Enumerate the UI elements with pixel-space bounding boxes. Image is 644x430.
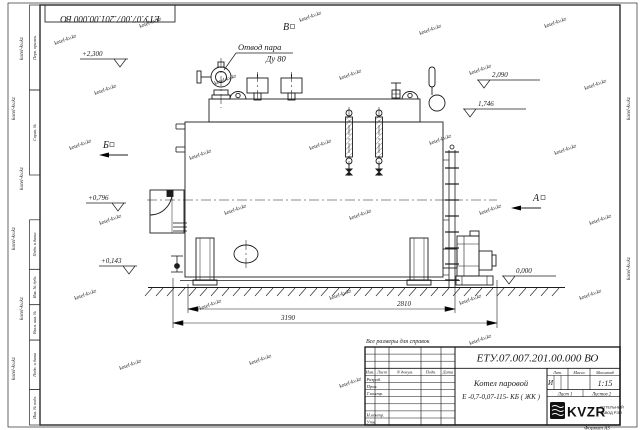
watermark-text: kotel-kv.kz (626, 256, 632, 280)
elevation-mark: 2,090 (477, 71, 540, 88)
watermark-text: kotel-kv.kz (11, 96, 17, 120)
support-left (193, 238, 217, 285)
titleblock-column-headers: Изм. Лист N докум. Подп. Дата (365, 370, 454, 375)
view-arrow-b (99, 153, 109, 158)
margin-label: Справ. № (32, 124, 37, 141)
lug-hole (408, 93, 412, 97)
drum-small-valve (391, 83, 401, 100)
watermark-text: kotel-kv.kz (419, 23, 443, 37)
product-name: Котел паровой (473, 378, 529, 388)
row-razrab: Разраб. (366, 377, 382, 382)
boiler-assembly (147, 58, 497, 287)
watermark-text: kotel-kv.kz (469, 333, 493, 347)
blueprint-sheet: kotel-kv.kzkotel-kv.kzkotel-kv.kzkotel-k… (0, 0, 644, 430)
row-prov: Пров. (366, 384, 378, 389)
margin-label: Взам. инв. № (32, 311, 37, 334)
watermark-text: kotel-kv.kz (339, 68, 363, 82)
view-arrow-a (511, 206, 521, 211)
margin-label: Инв. № подл. (32, 396, 37, 420)
elevation-mark: +2,300 (80, 50, 128, 67)
watermark-text: kotel-kv.kz (339, 376, 363, 390)
dimension-value: 3190 (280, 314, 296, 322)
elevation-value: +2,300 (82, 50, 103, 58)
row-tkontr: Т.контр. (367, 391, 384, 396)
blowdown-valve (171, 256, 183, 272)
logo-caption: ЗАВОД РЭП (600, 411, 622, 415)
elevation-value: 2,090 (492, 71, 508, 79)
format-label: Формат А3 (584, 425, 610, 430)
elevation-value: +0,796 (88, 194, 109, 202)
steam-drum-top (209, 99, 420, 122)
watermark-text: kotel-kv.kz (589, 213, 613, 227)
elevation-mark: 1,746 (463, 100, 526, 117)
valve-handwheel (197, 71, 201, 83)
col-list: Лист (376, 370, 387, 375)
elevation-value: 1,746 (478, 100, 494, 108)
watermark-text: kotel-kv.kz (119, 358, 143, 372)
row-nkontr: Н.контр. (366, 412, 385, 417)
company-logo: KVZR КОТЕЛЬНЫЙ ЗАВОД РЭП (550, 402, 624, 420)
watermark-text: kotel-kv.kz (309, 138, 333, 152)
logo-caption: КОТЕЛЬНЫЙ (600, 406, 624, 410)
watermark-text: kotel-kv.kz (626, 96, 632, 120)
watermark-text: kotel-kv.kz (349, 208, 373, 222)
watermark-text: kotel-kv.kz (19, 296, 25, 320)
centerlines (147, 58, 497, 269)
dimension-body-length: 2810 (188, 300, 455, 311)
lit-value: И (547, 379, 554, 387)
watermark-text: kotel-kv.kz (299, 10, 323, 24)
view-labels: Б В А (99, 22, 545, 211)
watermark-text: kotel-kv.kz (19, 36, 25, 60)
watermark-text: kotel-kv.kz (329, 288, 353, 302)
burner-front-box (150, 190, 184, 233)
callout-leader (224, 53, 236, 70)
watermark-text: kotel-kv.kz (579, 288, 603, 302)
watermark-text: kotel-kv.kz (199, 298, 223, 312)
reference-note: Все размеры для справок (366, 338, 430, 345)
lifting-lug (402, 92, 418, 100)
elevation-mark: 0,000 (502, 267, 556, 284)
watermark-text: kotel-kv.kz (189, 148, 213, 162)
watermark-text: kotel-kv.kz (74, 288, 98, 302)
masshtab-header: Масштаб (595, 370, 615, 375)
lifting-lug (230, 92, 246, 100)
watermark-text: kotel-kv.kz (469, 63, 493, 77)
col-izm: Изм. (365, 370, 375, 375)
watermark-text: kotel-kv.kz (69, 138, 93, 152)
watermark-text: kotel-kv.kz (544, 16, 568, 30)
titleblock-doc-number: ЕТУ.07.007.201.00.000 ВО (476, 353, 599, 365)
watermark-text: kotel-kv.kz (224, 203, 248, 217)
elevation-marks: +2,300 2,090 1,746 +0,796 +0,143 0,000 (80, 50, 556, 284)
watermark-text: kotel-kv.kz (429, 133, 453, 147)
ground (145, 288, 565, 297)
fan-motor (479, 251, 492, 270)
massa-header: Масса (572, 370, 584, 375)
watermark-text: kotel-kv.kz (19, 166, 25, 190)
lit-header: Лит. (552, 370, 562, 375)
pressure-gauge-siphon (429, 67, 445, 111)
watermark-text: kotel-kv.kz (94, 83, 118, 97)
flipped-docnumber: ЕТУ.07.007.201.00.000 ВО (60, 14, 161, 24)
scale-value: 1:15 (598, 379, 613, 388)
watermark-text: kotel-kv.kz (554, 143, 578, 157)
watermark-text: kotel-kv.kz (11, 356, 17, 380)
margin-label: Инв. № дубл. (32, 276, 37, 300)
watermark-text: kotel-kv.kz (11, 226, 17, 250)
elevation-value: +0,143 (101, 257, 122, 265)
col-podp: Подп. (425, 370, 437, 375)
watermark-text: kotel-kv.kz (249, 353, 273, 367)
support-right (407, 238, 431, 285)
margin-label: Перв. примен. (32, 35, 37, 61)
elevation-mark: +0,143 (99, 257, 137, 274)
view-label-v: В (283, 22, 289, 33)
margin-label: Подп. и дата (32, 353, 37, 378)
callout-text: Отвод пара (238, 42, 281, 52)
drawing-canvas: kotel-kv.kzkotel-kv.kzkotel-kv.kzkotel-k… (0, 0, 644, 430)
watermark-text: kotel-kv.kz (459, 293, 483, 307)
col-ndokum: N докум. (396, 370, 413, 375)
fan-base (456, 276, 493, 285)
sheet-number: Лист 1 (557, 392, 573, 397)
watermark-text: kotel-kv.kz (584, 78, 608, 92)
view-label-b: Б (102, 140, 109, 151)
dimension-overall-length: 3190 (173, 314, 497, 325)
col-data: Дата (442, 370, 454, 375)
title-block: ЕТУ.07.007.201.00.000 ВО Изм. Лист N док… (365, 347, 624, 430)
watermark-text: kotel-kv.kz (99, 213, 123, 227)
product-designation: Е -0,7-0,07-115- КБ ( ЖК ) (461, 393, 540, 401)
fan-unit (443, 231, 496, 285)
margin-labels: Перв. примен. Справ. № Подп. и дата Инв.… (32, 35, 37, 420)
watermark-text: kotel-kv.kz (54, 33, 78, 47)
callout-text: Ду 80 (265, 54, 287, 64)
elevation-mark: +0,796 (86, 194, 126, 211)
row-utv: Утв. (367, 420, 377, 425)
view-label-a: А (532, 193, 540, 204)
elevation-value: 0,000 (516, 267, 532, 275)
steam-outlet-callout: Отвод пара Ду 80 (224, 42, 293, 70)
sheets-total: Листов 2 (591, 392, 612, 397)
margin-label: Подп. и дата (32, 233, 37, 258)
watermark-text: kotel-kv.kz (479, 203, 503, 217)
dimension-value: 2810 (397, 300, 412, 308)
lug-hole (236, 93, 240, 97)
